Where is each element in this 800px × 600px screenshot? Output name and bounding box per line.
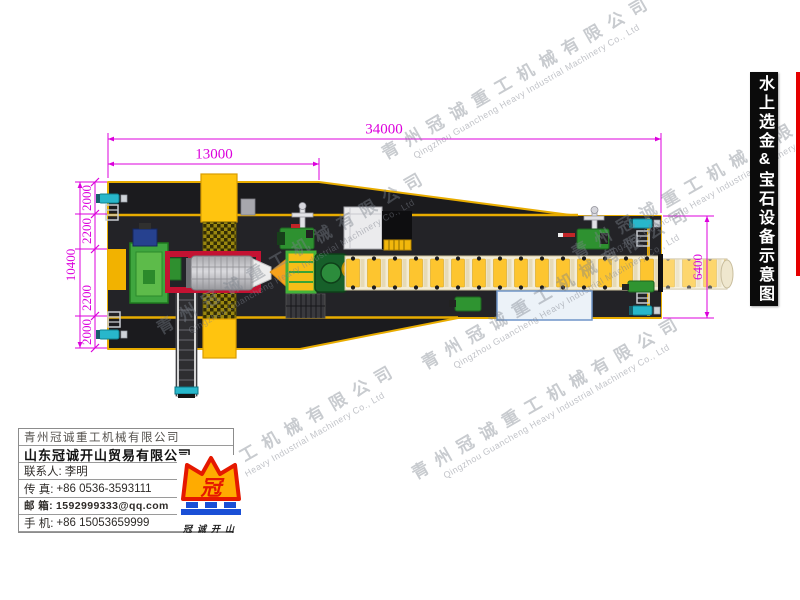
company-info-box: 青州冠诚重工机械有限公司 山东冠诚开山贸易有限公司 联系人: 李明 传 真: +… bbox=[18, 428, 234, 533]
title-banner: 水上选金&宝石设备示意图 bbox=[750, 72, 778, 306]
sluice-feed-frame bbox=[287, 252, 315, 292]
email-label: 邮 箱: bbox=[24, 498, 53, 513]
hopper-screen-lower bbox=[203, 292, 236, 319]
centrifugal-concentrator bbox=[315, 254, 347, 292]
page: 34000 13000 10400 2000 2200 2200 2000 64… bbox=[0, 0, 800, 600]
dim-starboard-inner: 2200 bbox=[79, 285, 95, 311]
stern-divider bbox=[658, 254, 663, 292]
tailings-conveyor bbox=[175, 290, 198, 398]
logo-caption: 冠诚开山 bbox=[177, 522, 245, 535]
dim-front-section: 13000 bbox=[195, 147, 233, 164]
generator-engine-mid bbox=[277, 224, 314, 249]
conveyor-end-roller bbox=[175, 387, 198, 394]
company-logo: 冠 冠诚开山 bbox=[177, 455, 245, 531]
grid-deck-box bbox=[286, 294, 325, 318]
hopper-screen-upper bbox=[203, 222, 236, 253]
mobile-value: +86 15053659999 bbox=[56, 517, 149, 529]
contact-label: 联系人: bbox=[24, 463, 62, 479]
accent-line bbox=[796, 72, 800, 276]
trommel-drum bbox=[191, 256, 253, 290]
recovery-pool bbox=[497, 291, 592, 320]
fax-value: +86 0536-3593111 bbox=[56, 483, 151, 495]
email-value: 1592999333@qq.com bbox=[56, 500, 169, 512]
contact-value: 李明 bbox=[65, 463, 88, 479]
deck-stairs bbox=[384, 240, 411, 250]
diesel-engine bbox=[133, 229, 157, 246]
deck-edge-block bbox=[108, 249, 126, 290]
mobile-label: 手 机: bbox=[24, 515, 53, 531]
deck-fitting bbox=[241, 199, 255, 215]
hopper-chute-lower bbox=[203, 319, 236, 358]
fax-label: 传 真: bbox=[24, 481, 53, 497]
company-name-primary: 青州冠诚重工机械有限公司 bbox=[19, 429, 233, 446]
crown-logo-icon: 冠 bbox=[177, 455, 245, 519]
control-cabin bbox=[344, 207, 382, 249]
dim-stern-width: 6400 bbox=[690, 254, 706, 280]
page-title: 水上选金&宝石设备示意图 bbox=[750, 75, 778, 304]
dim-starboard-outer: 2000 bbox=[79, 319, 95, 345]
dim-total-length: 34000 bbox=[365, 122, 403, 139]
dim-port-inner: 2200 bbox=[79, 218, 95, 244]
dim-hull-width: 10400 bbox=[63, 249, 79, 282]
sluice-run bbox=[345, 256, 661, 290]
dim-port-outer: 2000 bbox=[79, 185, 95, 211]
